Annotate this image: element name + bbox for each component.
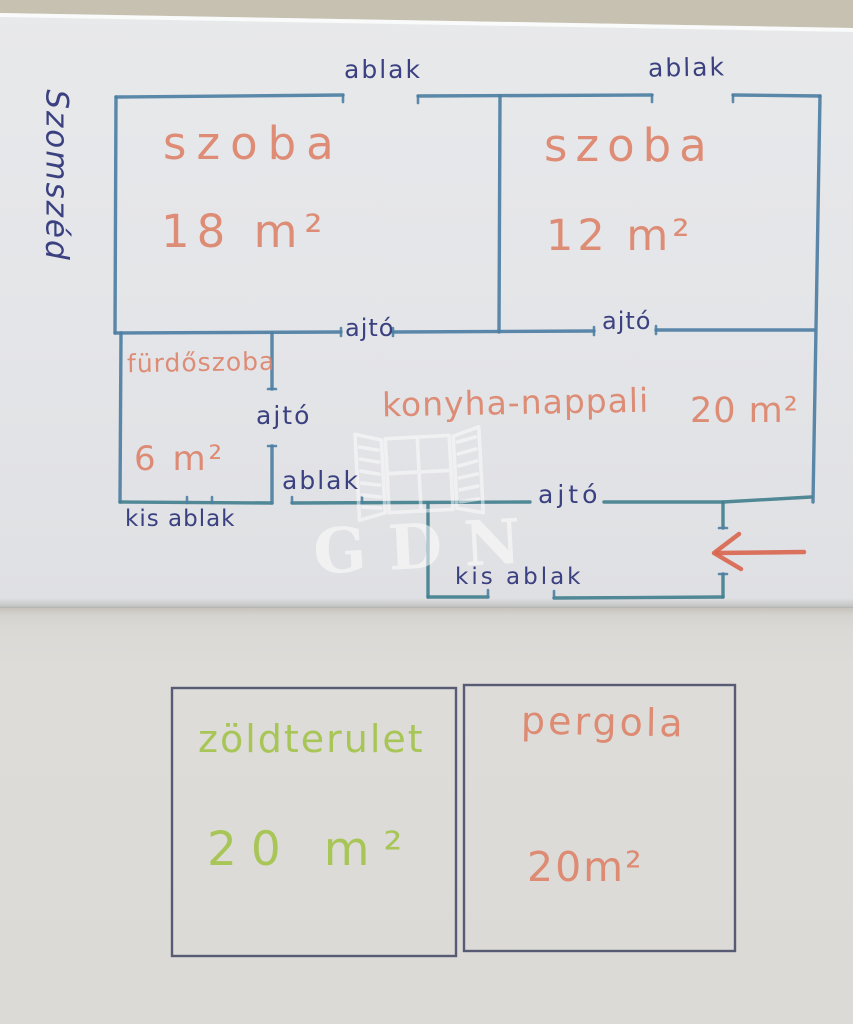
green-area-name: zöldterulet: [198, 720, 425, 758]
kitchen-name: konyha-nappali: [382, 384, 650, 422]
window-logo-icon: [355, 427, 483, 520]
neighbor-label: Szomszéd: [41, 87, 72, 265]
door-label-bathroom: ajtó: [256, 403, 311, 428]
door-label-room1: ajtó: [345, 316, 394, 340]
small-window-label-bathroom: kis ablak: [125, 508, 236, 531]
window-label-kitchen: ablak: [282, 468, 360, 493]
bathroom-name: fürdőszoba: [127, 349, 276, 377]
bathroom-area: 6 m²: [134, 442, 225, 476]
window-label-room2: ablak: [648, 54, 726, 80]
pergola-area: 20m²: [527, 847, 644, 888]
green-area-value: 20 m²: [207, 826, 416, 873]
pergola-name: pergola: [521, 702, 686, 743]
room2-area: 12 m²: [546, 215, 694, 258]
window-label-room1: ablak: [344, 57, 422, 82]
room1-name: szoba: [163, 121, 344, 166]
room1-area: 18 m²: [161, 209, 329, 254]
floor-plan-photo: GDN Szomszéd ablak ablak ajtó ajtó ajtó …: [0, 0, 853, 1024]
room2-name: szoba: [544, 123, 715, 168]
small-window-label-entry: kis ablak: [455, 566, 584, 589]
kitchen-area: 20 m²: [690, 394, 799, 429]
entrance-arrow: [714, 534, 804, 569]
door-label-kitchen: ajtó: [538, 482, 601, 507]
door-label-room2: ajtó: [602, 309, 651, 333]
